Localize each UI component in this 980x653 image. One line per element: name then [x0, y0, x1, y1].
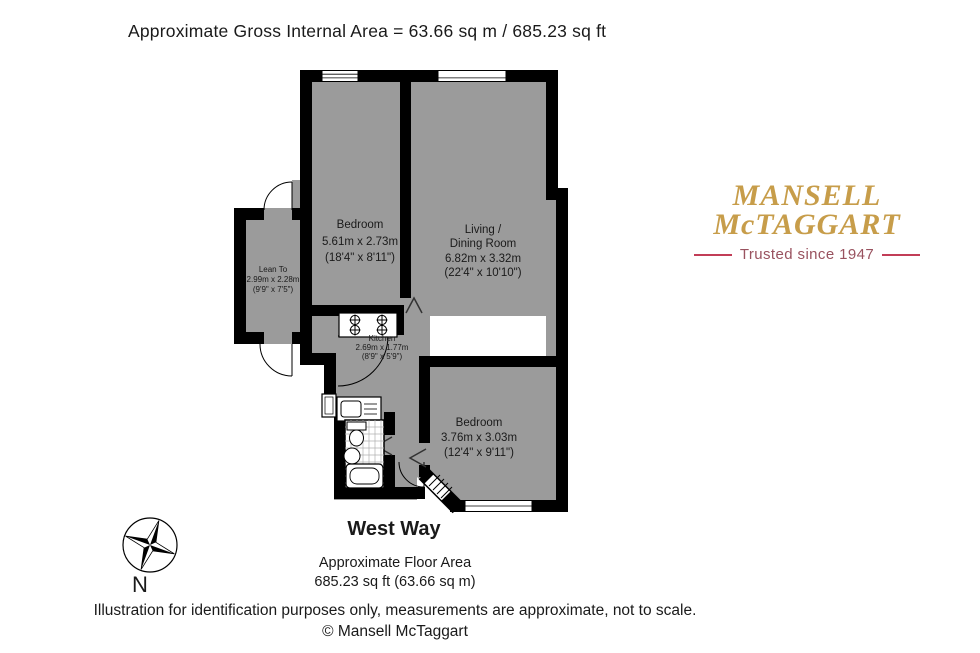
svg-text:Kitchen: Kitchen [369, 334, 396, 343]
floor-area-value: 685.23 sq ft (63.66 sq m) [275, 573, 515, 592]
wall-right-lower [556, 188, 568, 512]
svg-text:Lean To: Lean To [259, 265, 288, 274]
svg-text:3.76m x 3.03m: 3.76m x 3.03m [441, 432, 517, 444]
svg-text:5.61m x 2.73m: 5.61m x 2.73m [322, 236, 398, 248]
wall-right-upper [546, 70, 558, 200]
wall-living-bed2-divider [419, 356, 556, 367]
sink-unit-icon [337, 397, 381, 421]
svg-text:2.69m x 1.77m: 2.69m x 1.77m [356, 343, 409, 352]
boiler-icon [322, 394, 336, 417]
wall-leanto-left [234, 208, 246, 344]
disclaimer-text: Illustration for identification purposes… [45, 600, 745, 621]
window-living-icon [438, 71, 506, 82]
page: Approximate Gross Internal Area = 63.66 … [0, 0, 980, 653]
wall-bed1-living-divider [400, 70, 411, 298]
door-leanto-front-icon [264, 182, 292, 210]
svg-text:Bedroom: Bedroom [337, 219, 384, 231]
basin-icon [344, 448, 360, 464]
wall-bed2-left-a [419, 367, 430, 443]
svg-text:(8'9" x 5'9"): (8'9" x 5'9") [362, 352, 403, 361]
svg-text:(22'4" x 10'10"): (22'4" x 10'10") [444, 267, 521, 279]
wall-leanto-top-a [234, 208, 264, 220]
wall-bathroom-right-a [384, 412, 395, 435]
wall-hall-bottom [334, 487, 425, 499]
compass-star-shading [126, 521, 175, 570]
svg-text:(12'4" x 9'11"): (12'4" x 9'11") [444, 447, 514, 459]
svg-text:(18'4" x 8'11"): (18'4" x 8'11") [325, 252, 395, 264]
svg-text:6.82m x 3.32m: 6.82m x 3.32m [445, 253, 521, 265]
wall-bathroom-right-b [384, 455, 395, 490]
wall-leanto-top-b [292, 208, 312, 220]
svg-text:Living /: Living / [465, 224, 502, 236]
copyright-text: © Mansell McTaggart [45, 621, 745, 642]
window-bedroom2-icon [465, 501, 532, 512]
compass-north-label: N [132, 572, 148, 597]
door-leanto-rear-icon [260, 344, 292, 376]
floor-area-label: Approximate Floor Area [275, 554, 515, 573]
floor-main-upper [300, 70, 558, 316]
wall-bathroom-left [334, 410, 345, 499]
floor-area-block: Approximate Floor Area 685.23 sq ft (63.… [275, 554, 515, 592]
compass-rose: N [110, 505, 200, 605]
svg-text:Bedroom: Bedroom [456, 417, 503, 429]
street-name: West Way [296, 518, 492, 541]
window-bedroom1-icon [322, 71, 358, 82]
tagline-rule-left [694, 254, 732, 256]
logo-line1: MANSELL [688, 181, 926, 210]
wall-leanto-bottom-b [292, 332, 312, 344]
logo-tagline-row: Trusted since 1947 [688, 246, 926, 263]
logo-line2: McTAGGART [688, 210, 926, 239]
footer: Illustration for identification purposes… [45, 600, 745, 642]
wall-hall-step-h [302, 353, 336, 365]
bathtub-icon [346, 464, 383, 488]
wall-leanto-bottom-a [234, 332, 264, 344]
brand-logo: MANSELL McTAGGART Trusted since 1947 [688, 181, 926, 263]
svg-text:2.99m x 2.28m: 2.99m x 2.28m [247, 275, 300, 284]
logo-tagline: Trusted since 1947 [740, 246, 874, 263]
tagline-rule-right [882, 254, 920, 256]
svg-text:Dining Room: Dining Room [450, 238, 516, 250]
svg-text:(9'9" x 7'5"): (9'9" x 7'5") [253, 285, 294, 294]
